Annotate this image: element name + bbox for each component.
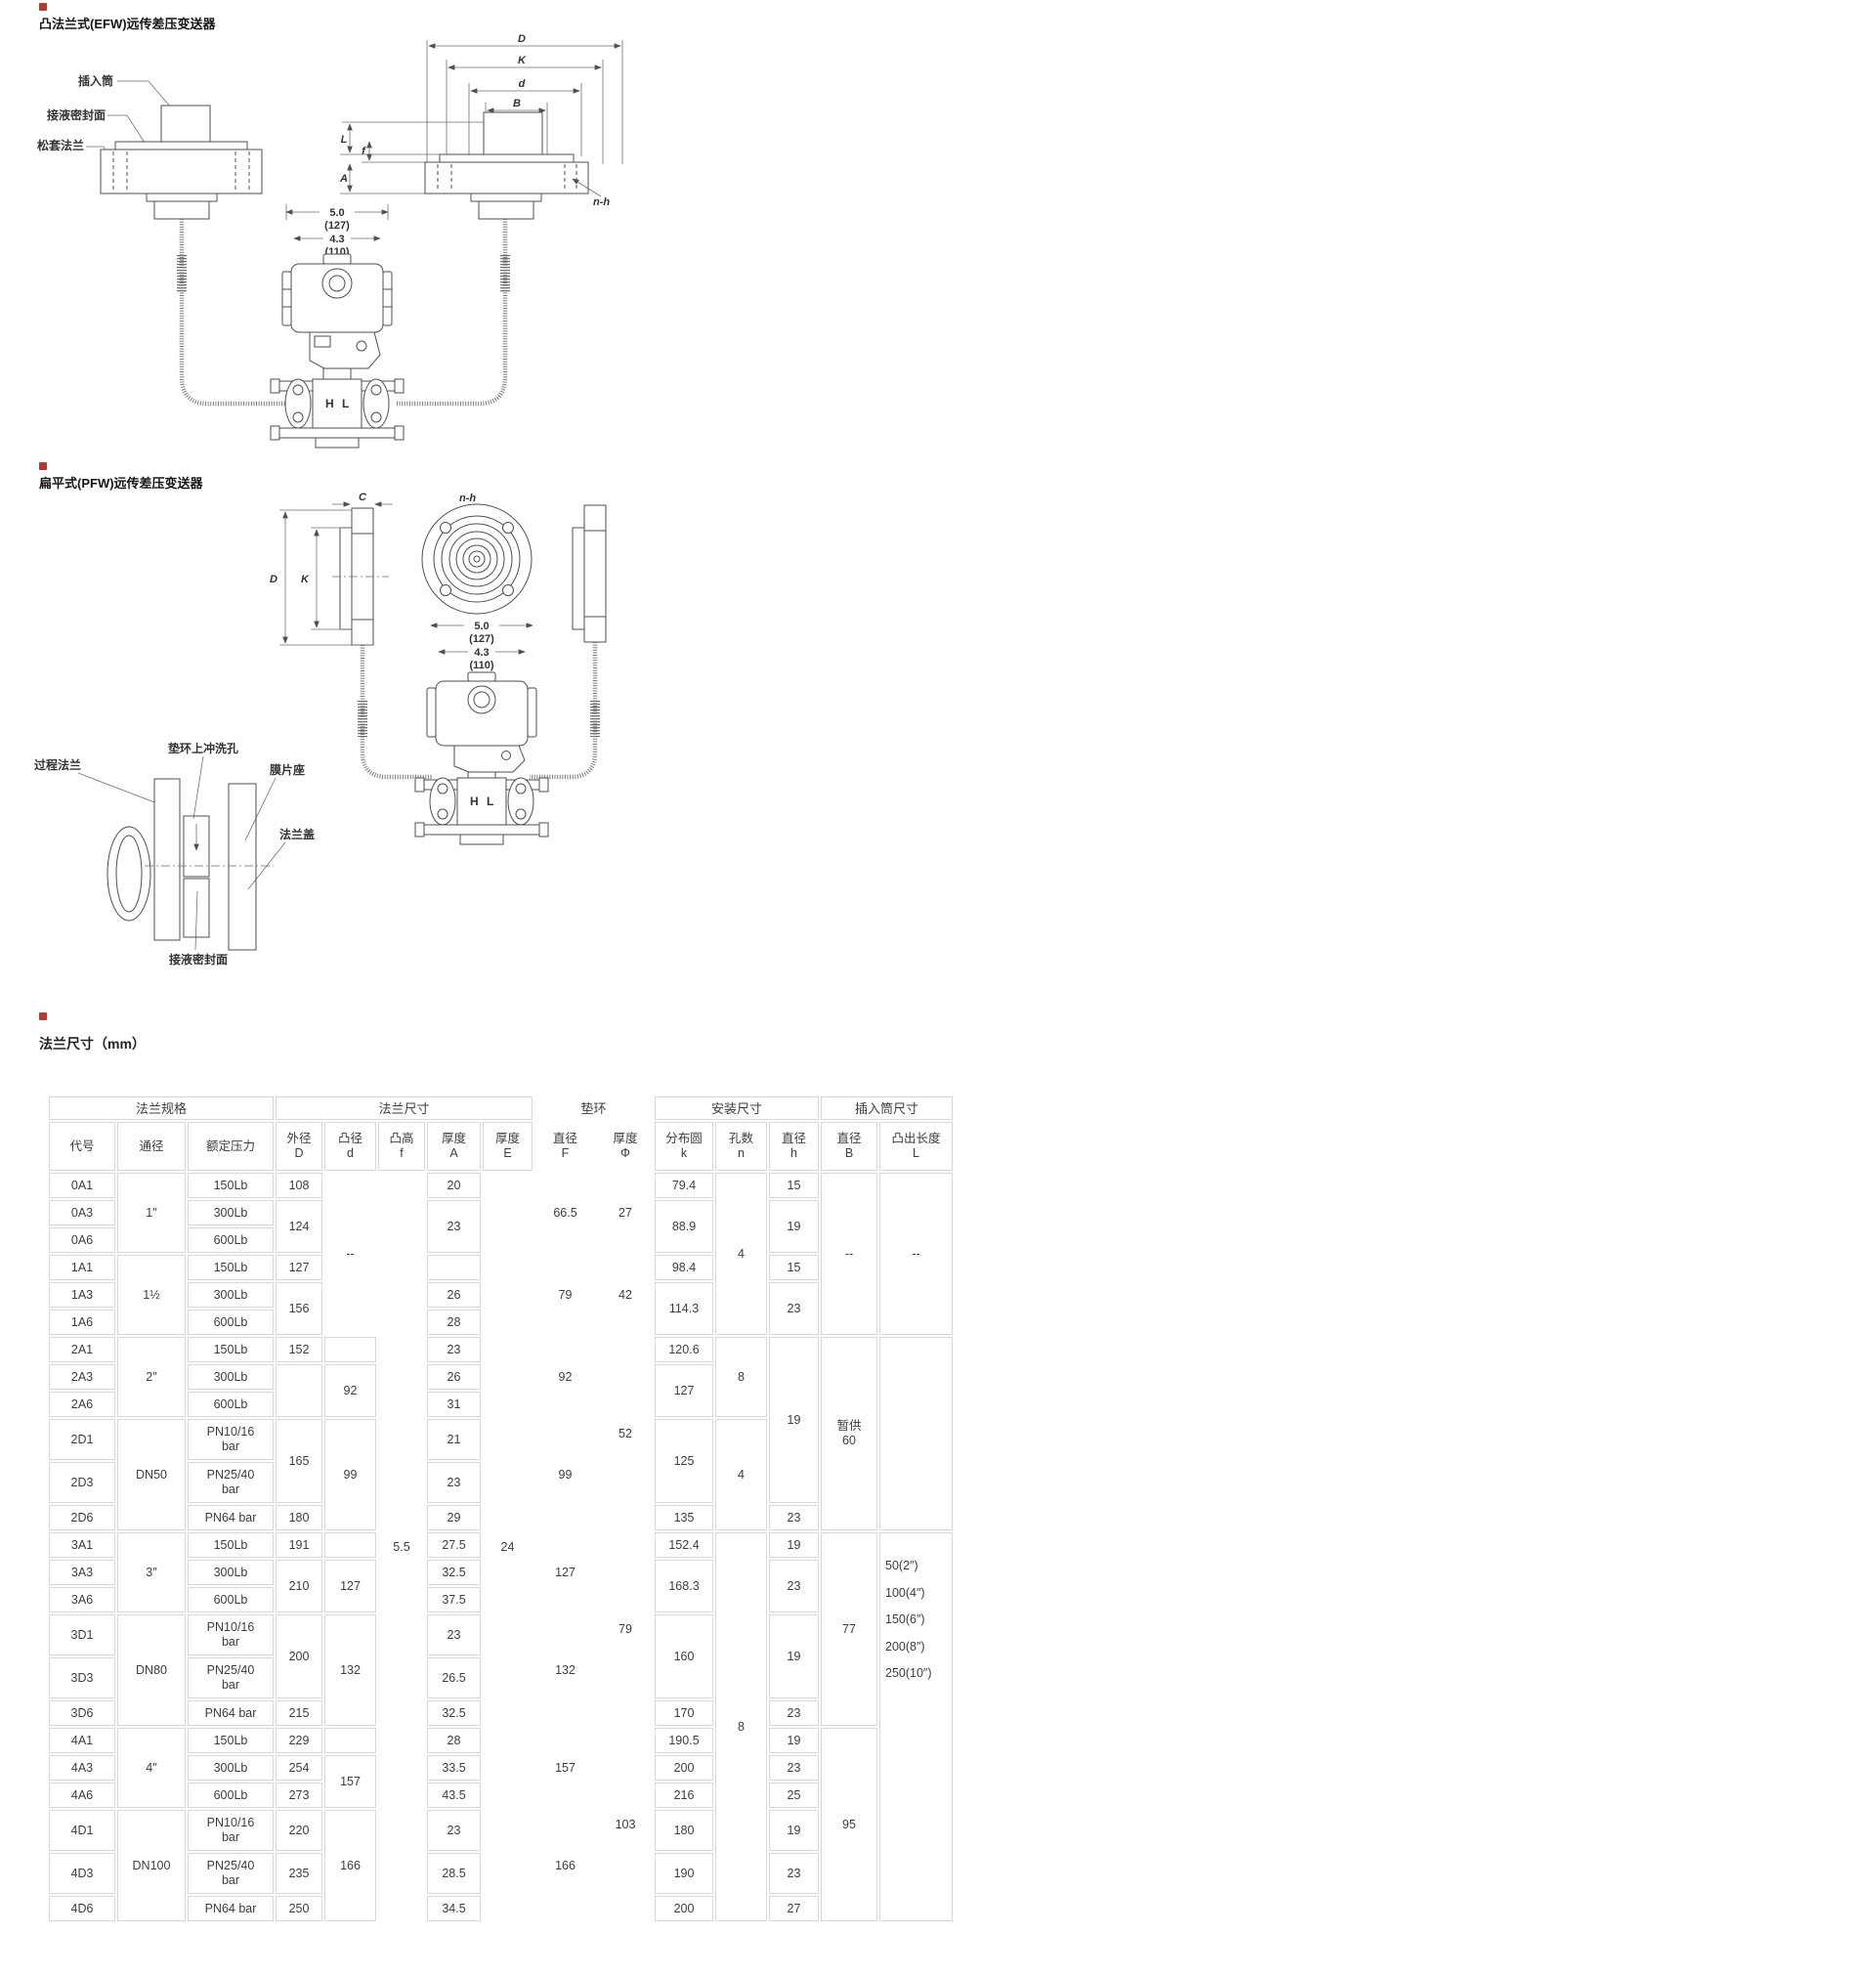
dim-label-K: K (301, 574, 310, 585)
housing-side-cap (383, 272, 392, 325)
capillary-tube (362, 645, 432, 777)
hex-nut (271, 379, 279, 393)
table-cell: 180 (655, 1810, 713, 1851)
table-cell: 8 (715, 1337, 767, 1417)
table-cell: 166 (324, 1810, 376, 1921)
table-cell: 160 (655, 1614, 713, 1698)
table-cell (324, 1532, 376, 1558)
table-cell: 3A6 (49, 1587, 115, 1612)
table-cell: 2″ (117, 1337, 186, 1417)
table-cell: -- (879, 1173, 953, 1335)
table-cell: 28 (427, 1310, 481, 1335)
table-cell: -- (821, 1173, 877, 1335)
column-header: 凸径 d (324, 1122, 376, 1171)
table-cell: PN64 bar (188, 1505, 274, 1530)
table-cell: DN100 (117, 1810, 186, 1921)
table-cell: 4A1 (49, 1728, 115, 1753)
table-cell: 4D1 (49, 1810, 115, 1851)
dim-label-D: D (270, 574, 277, 585)
table-cell: 254 (276, 1755, 322, 1781)
capillary-tube (530, 642, 595, 777)
flange-bolt (371, 385, 381, 395)
hex-nut (395, 379, 404, 393)
table-cell: 124 (276, 1200, 322, 1253)
table-cell: 23 (769, 1505, 819, 1530)
table-cell: 23 (427, 1337, 481, 1362)
table-cell: 4 (715, 1173, 767, 1335)
hex-nut (539, 823, 548, 837)
dim-label-K: K (518, 55, 527, 66)
table-cell: 79 (534, 1255, 596, 1335)
table-cell: 4A3 (49, 1755, 115, 1781)
table-cell: 4 (715, 1419, 767, 1530)
process-flange-label: 过程法兰 (34, 757, 81, 772)
table-cell: PN10/16 bar (188, 1419, 274, 1460)
table-cell: 120.6 (655, 1337, 713, 1362)
width-value-mm: (127) (469, 633, 494, 645)
column-group-header: 插入筒尺寸 (821, 1096, 953, 1120)
table-cell: PN10/16 bar (188, 1614, 274, 1655)
table-cell: PN64 bar (188, 1700, 274, 1726)
hex-nut (271, 426, 279, 440)
table-cell: -- (324, 1173, 376, 1335)
column-header: 孔数 n (715, 1122, 767, 1171)
width-value-mm: (127) (324, 220, 350, 232)
width2-value-in: 4.3 (329, 234, 344, 245)
table-cell: 2A6 (49, 1392, 115, 1417)
table-cell: 220 (276, 1810, 322, 1851)
process-flange-body (313, 379, 362, 428)
table-cell: 1A6 (49, 1310, 115, 1335)
table-cell: 600Lb (188, 1587, 274, 1612)
table-cell (427, 1255, 481, 1280)
column-header: 外径 D (276, 1122, 322, 1171)
column-group-header: 法兰尺寸 (276, 1096, 533, 1120)
table-cell: 191 (276, 1532, 322, 1558)
table-cell: 3D6 (49, 1700, 115, 1726)
table-cell: PN25/40 bar (188, 1657, 274, 1698)
table-cell: 4″ (117, 1728, 186, 1808)
table-cell: 99 (534, 1419, 596, 1530)
table-cell: 190.5 (655, 1728, 713, 1753)
cover-plate (340, 528, 352, 629)
table-cell: 127 (534, 1532, 596, 1612)
table-cell: 15 (769, 1173, 819, 1198)
table-cell: 19 (769, 1614, 819, 1698)
table-cell (276, 1364, 322, 1417)
table-cell: 1A3 (49, 1282, 115, 1308)
leader-line (78, 773, 162, 805)
flange-bolt-bar-bottom (278, 428, 396, 438)
table-cell: 600Lb (188, 1227, 274, 1253)
table-cell: 300Lb (188, 1755, 274, 1781)
table-cell: 43.5 (427, 1783, 481, 1808)
table-cell: 3A3 (49, 1560, 115, 1585)
dim-label-A: A (339, 173, 348, 185)
pfw-section-title: 扁平式(PFW)远传差压变送器 (39, 473, 203, 492)
table-cell: 200 (655, 1896, 713, 1921)
table-cell: 300Lb (188, 1560, 274, 1585)
table-cell (879, 1337, 953, 1530)
column-header: 代号 (49, 1122, 115, 1171)
table-cell: 2A1 (49, 1337, 115, 1362)
insert-tube-label: 插入筒 (78, 73, 113, 88)
table-cell: 24 (483, 1173, 533, 1921)
dim-label-L: L (341, 134, 348, 146)
raised-face-right (440, 154, 574, 162)
width2-value-in: 4.3 (474, 647, 489, 659)
leader-line (193, 756, 203, 819)
capillary-tube (182, 219, 285, 404)
flange-right (425, 162, 588, 193)
transmitter-top-cap (468, 672, 495, 681)
table-cell: 2D6 (49, 1505, 115, 1530)
bolt-hole (441, 523, 451, 534)
table-cell: 23 (769, 1282, 819, 1335)
bolt-hole (441, 585, 451, 596)
flange-cover (229, 784, 256, 950)
table-cell: 26 (427, 1364, 481, 1390)
column-header: 厚度 Φ (598, 1122, 653, 1171)
column-header: 凸高 f (378, 1122, 425, 1171)
table-cell: 127 (655, 1364, 713, 1417)
table-cell: 99 (324, 1419, 376, 1530)
transmitter-display (322, 269, 352, 298)
table-cell: 23 (427, 1810, 481, 1851)
dim-label-f: f (362, 146, 366, 157)
flush-hole-label: 垫环上冲洗孔 (168, 741, 238, 755)
table-cell: 98.4 (655, 1255, 713, 1280)
table-cell: 19 (769, 1200, 819, 1253)
table-cell: 29 (427, 1505, 481, 1530)
table-cell: 150Lb (188, 1532, 274, 1558)
flange-base-plate (316, 438, 359, 448)
flange-bolt (371, 412, 381, 422)
seal-block (154, 201, 209, 219)
table-cell: 25 (769, 1783, 819, 1808)
table-cell: 37.5 (427, 1587, 481, 1612)
table-cell: 20 (427, 1173, 481, 1198)
process-flange-body (457, 778, 506, 825)
table-cell: 8 (715, 1532, 767, 1921)
table-cell: 42 (598, 1255, 653, 1335)
table-cell: PN10/16 bar (188, 1810, 274, 1851)
table-cell: 79.4 (655, 1173, 713, 1198)
seal-block-right (479, 201, 533, 219)
table-cell: 235 (276, 1853, 322, 1894)
table-cell: 1½ (117, 1255, 186, 1335)
table-cell: 15 (769, 1255, 819, 1280)
column-header: 厚度 E (483, 1122, 533, 1171)
table-cell: 1″ (117, 1173, 186, 1253)
transmitter-display (468, 686, 495, 713)
width-value-in: 5.0 (474, 621, 489, 632)
table-cell: PN25/40 bar (188, 1462, 274, 1503)
table-cell: 127 (276, 1255, 322, 1280)
flange-face (422, 504, 532, 614)
table-cell: 23 (769, 1853, 819, 1894)
flange-base-plate (460, 835, 503, 844)
table-cell: 127 (324, 1560, 376, 1612)
table-cell: 165 (276, 1419, 322, 1503)
flange-bolt (293, 385, 303, 395)
table-cell: 66.5 (534, 1173, 596, 1253)
table-cell: 108 (276, 1173, 322, 1198)
table-cell: 166 (534, 1810, 596, 1921)
table-cell: 152.4 (655, 1532, 713, 1558)
table-cell: 157 (534, 1728, 596, 1808)
table-cell: 32.5 (427, 1560, 481, 1585)
column-header: 直径 B (821, 1122, 877, 1171)
dim-label-D: D (518, 33, 526, 45)
table-cell: PN25/40 bar (188, 1853, 274, 1894)
n-h-label: n-h (459, 493, 476, 504)
page: { "colors":{"bullet":"#b23b2e","table_bo… (0, 0, 1876, 1976)
table-cell: 273 (276, 1783, 322, 1808)
capillary-tube (397, 219, 505, 404)
low-port-label: L (487, 795, 493, 808)
efw-section-title: 凸法兰式(EFW)远传差压变送器 (39, 14, 216, 32)
wetted-seal-face-label: 接液密封面 (169, 952, 228, 967)
table-cell: 26.5 (427, 1657, 481, 1698)
table-cell: 4A6 (49, 1783, 115, 1808)
table-cell: 4D3 (49, 1853, 115, 1894)
table-cell: 0A3 (49, 1200, 115, 1225)
column-header: 直径 h (769, 1122, 819, 1171)
flange-cover-label: 法兰盖 (279, 827, 315, 841)
column-header: 通径 (117, 1122, 186, 1171)
table-cell: 0A1 (49, 1173, 115, 1198)
table-cell: 暂供 60 (821, 1337, 877, 1530)
table-cell: 150Lb (188, 1173, 274, 1198)
table-cell: 157 (324, 1755, 376, 1808)
flange-table-container: 法兰规格法兰尺寸垫环安装尺寸插入筒尺寸代号通径额定压力外径 D凸径 d凸高 f厚… (47, 1095, 955, 1923)
table-cell: 19 (769, 1337, 819, 1503)
hex-nut (395, 426, 404, 440)
section-bullet-icon (39, 462, 47, 470)
table-cell: 23 (769, 1755, 819, 1781)
column-group-header: 安装尺寸 (655, 1096, 819, 1120)
table-cell: 125 (655, 1419, 713, 1503)
table-cell: 23 (427, 1462, 481, 1503)
table-title: 法兰尺寸（mm） (39, 1034, 146, 1053)
table-cell: 1A1 (49, 1255, 115, 1280)
table-cell: 210 (276, 1560, 322, 1612)
column-header: 厚度 A (427, 1122, 481, 1171)
high-port-label: H (325, 397, 334, 410)
table-cell: 27.5 (427, 1532, 481, 1558)
table-cell: 135 (655, 1505, 713, 1530)
table-cell: DN80 (117, 1614, 186, 1726)
table-cell: 92 (324, 1364, 376, 1417)
table-cell: 3D3 (49, 1657, 115, 1698)
table-cell: 150Lb (188, 1255, 274, 1280)
column-header: 额定压力 (188, 1122, 274, 1171)
flange-bolt-bar-bottom (423, 825, 540, 835)
table-cell: 28.5 (427, 1853, 481, 1894)
table-cell: 300Lb (188, 1282, 274, 1308)
column-header: 直径 F (534, 1122, 596, 1171)
table-cell: 200 (655, 1755, 713, 1781)
low-port-label: L (342, 397, 349, 410)
hex-nut (539, 778, 548, 792)
table-cell: 156 (276, 1282, 322, 1335)
leader-line (245, 778, 276, 840)
table-cell: 132 (324, 1614, 376, 1726)
diaphragm-seat-label: 膜片座 (270, 762, 305, 777)
table-cell: 5.5 (378, 1173, 425, 1921)
table-cell: 600Lb (188, 1783, 274, 1808)
column-header: 凸出长度 L (879, 1122, 953, 1171)
seal-neck (147, 193, 217, 201)
leader-line (107, 115, 145, 143)
table-cell: 229 (276, 1728, 322, 1753)
table-cell: 250 (276, 1896, 322, 1921)
transmitter-bracket (310, 332, 380, 368)
n-h-label: n-h (593, 196, 610, 208)
table-cell: 28 (427, 1728, 481, 1753)
table-cell: 77 (821, 1532, 877, 1726)
table-cell: 19 (769, 1810, 819, 1851)
cover-plate (573, 528, 584, 629)
table-cell (324, 1728, 376, 1753)
bolt-hole (503, 585, 514, 596)
table-cell: 33.5 (427, 1755, 481, 1781)
table-cell: 23 (769, 1560, 819, 1612)
table-cell: 2D3 (49, 1462, 115, 1503)
flange-dimensions-table: 法兰规格法兰尺寸垫环安装尺寸插入筒尺寸代号通径额定压力外径 D凸径 d凸高 f厚… (47, 1095, 955, 1923)
process-pipe-inner (116, 836, 142, 912)
flange-bolt (516, 809, 526, 819)
flange-bolt (438, 809, 448, 819)
column-header: 分布圆 k (655, 1122, 713, 1171)
table-cell: 150Lb (188, 1337, 274, 1362)
table-cell: 190 (655, 1853, 713, 1894)
table-cell: 34.5 (427, 1896, 481, 1921)
high-port-label: H (470, 795, 479, 808)
table-cell: DN50 (117, 1419, 186, 1530)
bolt-hole (503, 523, 514, 534)
flange-bolt (293, 412, 303, 422)
table-cell: 600Lb (188, 1310, 274, 1335)
housing-side-cap (282, 272, 291, 325)
table-cell: 215 (276, 1700, 322, 1726)
table-cell: 79 (598, 1532, 653, 1726)
table-cell: 2D1 (49, 1419, 115, 1460)
table-cell: 23 (427, 1614, 481, 1655)
table-cell: 88.9 (655, 1200, 713, 1253)
table-cell: 216 (655, 1783, 713, 1808)
column-group-header: 垫环 (534, 1096, 653, 1120)
table-cell: 132 (534, 1614, 596, 1726)
table-cell: 3″ (117, 1532, 186, 1612)
table-cell: 2A3 (49, 1364, 115, 1390)
leader-line (195, 891, 197, 950)
flange-bolt (516, 784, 526, 794)
table-cell: 150Lb (188, 1728, 274, 1753)
housing-side-cap (427, 688, 436, 737)
table-cell: 27 (598, 1173, 653, 1253)
insert-tube-right (484, 112, 542, 154)
column-group-header: 法兰规格 (49, 1096, 274, 1120)
table-cell: 19 (769, 1532, 819, 1558)
table-cell: 95 (821, 1728, 877, 1921)
loose-flange (101, 150, 262, 193)
wetted-seal-face-label: 接液密封面 (47, 107, 106, 122)
table-cell: PN64 bar (188, 1896, 274, 1921)
transmitter-top-cap (323, 254, 351, 264)
table-cell: 23 (769, 1700, 819, 1726)
dim-label-C: C (359, 492, 367, 503)
table-cell: 26 (427, 1282, 481, 1308)
table-cell (324, 1337, 376, 1362)
table-cell: 52 (598, 1337, 653, 1530)
section-bullet-icon (39, 3, 47, 11)
table-cell: 92 (534, 1337, 596, 1417)
process-flange (154, 779, 180, 940)
table-cell: 3D1 (49, 1614, 115, 1655)
seal-neck-right (471, 193, 541, 201)
table-cell: 31 (427, 1392, 481, 1417)
table-cell: 27 (769, 1896, 819, 1921)
dim-label-d: d (519, 78, 526, 90)
pfw-diagram: 垫环上冲洗孔 膜片座 过程法兰 法兰盖 接液密封面 C D K n-h (29, 491, 762, 989)
table-cell: 103 (598, 1728, 653, 1921)
hex-nut (415, 778, 424, 792)
table-cell: 170 (655, 1700, 713, 1726)
table-cell: 600Lb (188, 1392, 274, 1417)
table-cell: 4D6 (49, 1896, 115, 1921)
table-cell: 23 (427, 1200, 481, 1253)
table-cell: 300Lb (188, 1200, 274, 1225)
efw-diagram: 插入筒 接液密封面 松套法兰 D K d B L A f n-h (29, 32, 762, 467)
table-cell: 152 (276, 1337, 322, 1362)
flange-bar (584, 505, 606, 642)
table-cell: 168.3 (655, 1560, 713, 1612)
insert-tube (161, 106, 210, 142)
flange-bolt (438, 784, 448, 794)
table-cell: 200 (276, 1614, 322, 1698)
table-cell: 32.5 (427, 1700, 481, 1726)
table-row: 0A11″150Lb108--5.5202466.52779.4415---- (49, 1173, 953, 1198)
section-bullet-icon (39, 1012, 47, 1020)
table-cell: 0A6 (49, 1227, 115, 1253)
table-cell: 19 (769, 1728, 819, 1753)
table-cell: 3A1 (49, 1532, 115, 1558)
table-cell: 21 (427, 1419, 481, 1460)
table-cell: 50(2″) 100(4″) 150(6″) 200(8″) 250(10″) (879, 1532, 953, 1921)
width2-value-mm: (110) (469, 660, 493, 671)
transmitter-bracket (454, 746, 525, 772)
process-pipe (107, 827, 150, 921)
table-cell: 300Lb (188, 1364, 274, 1390)
width-value-in: 5.0 (329, 207, 344, 219)
raised-face (115, 142, 247, 150)
table-cell: 180 (276, 1505, 322, 1530)
loose-flange-label: 松套法兰 (37, 138, 84, 152)
table-cell: 114.3 (655, 1282, 713, 1335)
housing-side-cap (528, 688, 536, 737)
hex-nut (415, 823, 424, 837)
dim-label-B: B (513, 98, 521, 109)
